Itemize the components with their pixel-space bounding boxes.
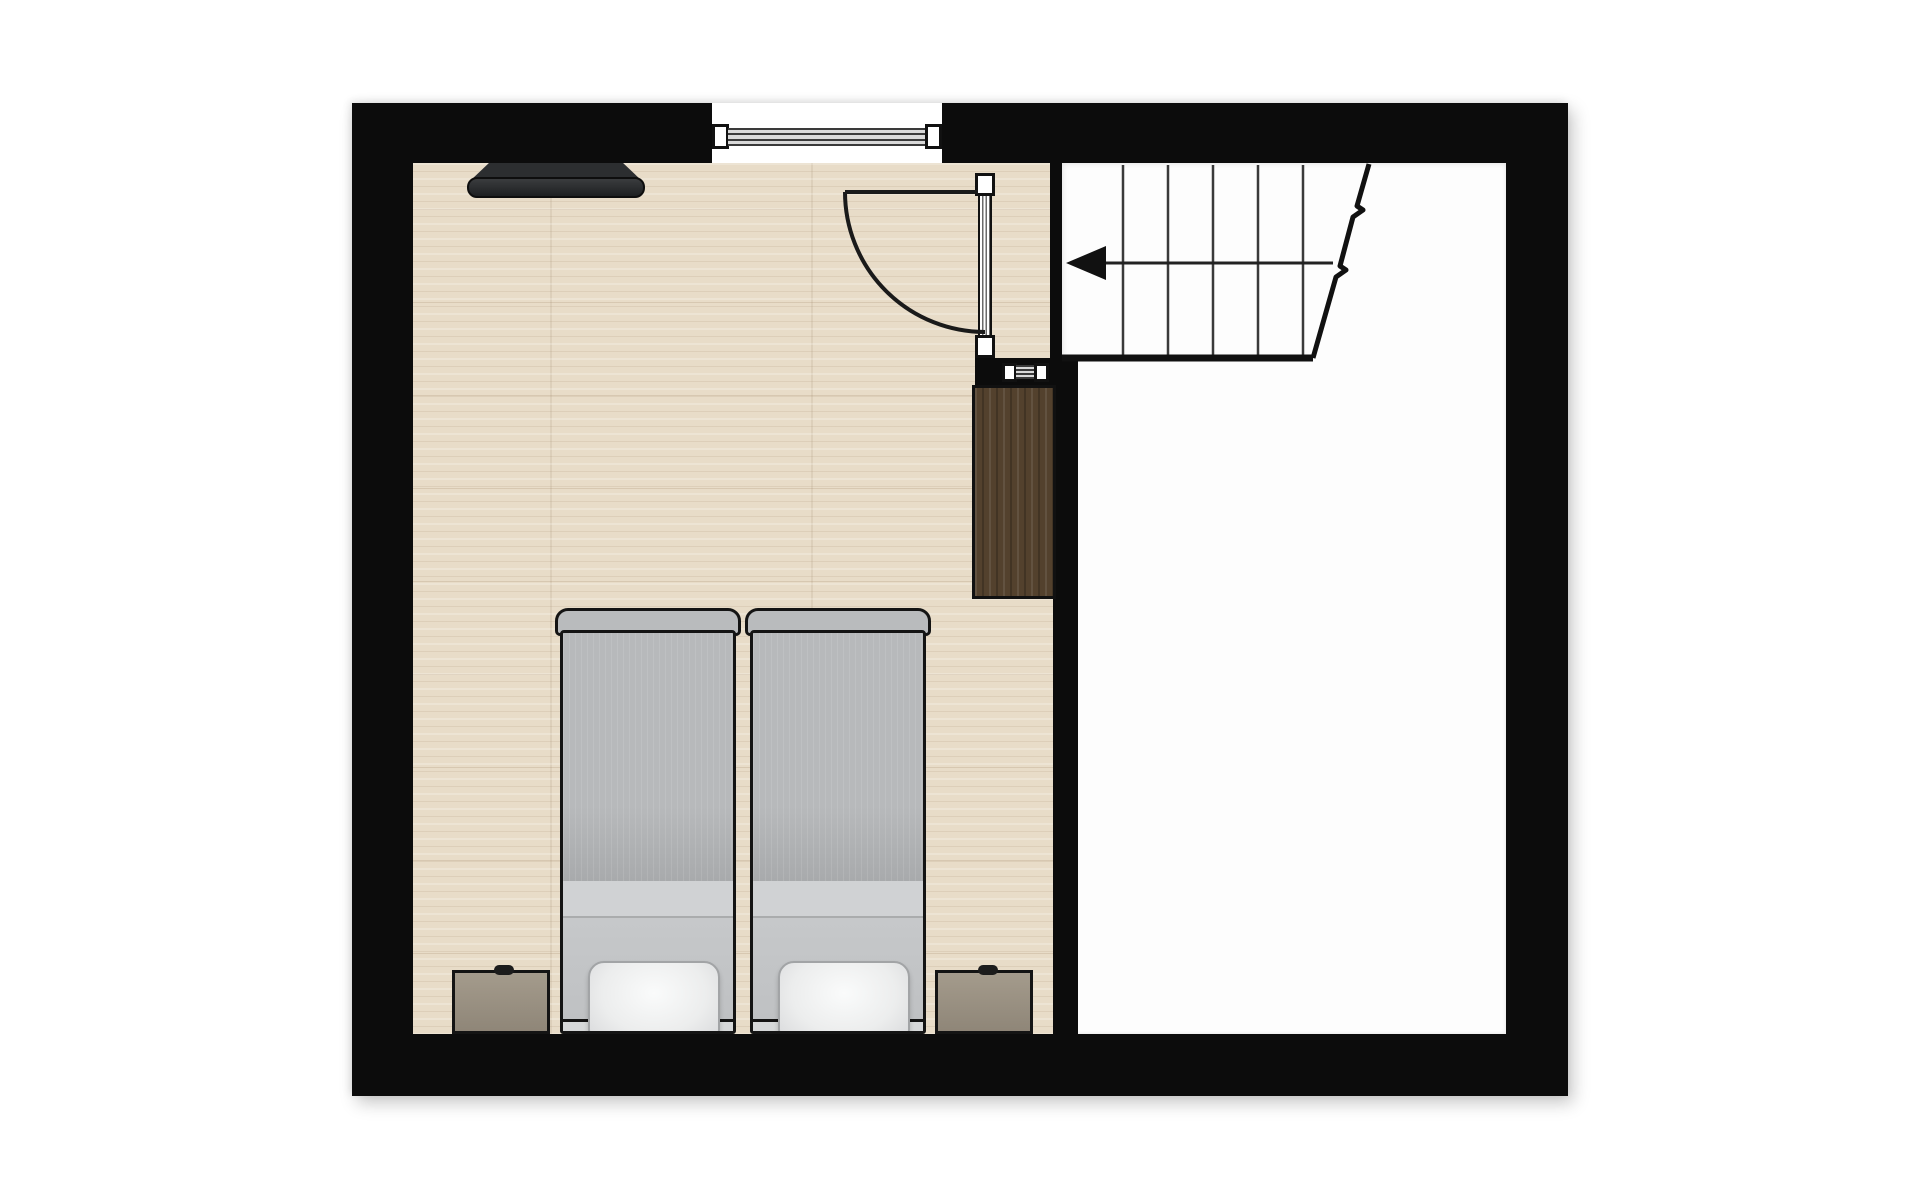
- bed-pillow-icon: [588, 961, 720, 1034]
- stair-left-wall: [1050, 163, 1062, 369]
- window-glazing-icon: [728, 128, 926, 146]
- stair-hall-room: [1062, 163, 1506, 1034]
- bed-fold-band: [563, 881, 733, 918]
- bed-fold-band: [753, 881, 923, 918]
- partition-wall: [1053, 356, 1078, 1034]
- mini-window-post-right-icon: [1034, 363, 1049, 382]
- window: [712, 103, 942, 163]
- nightstand-knob-icon: [978, 965, 998, 975]
- window-post-right-icon: [925, 124, 942, 149]
- bed-duvet: [563, 633, 733, 881]
- door-latch-post: [975, 335, 995, 358]
- wardrobe: [972, 385, 1056, 599]
- bed-body: [750, 630, 926, 1034]
- nightstand-knob-icon: [494, 965, 514, 975]
- tv-icon: [467, 177, 645, 198]
- mini-window-post-left-icon: [1002, 363, 1017, 382]
- mini-window-glazing-icon: [1016, 365, 1035, 379]
- door-hinge-post: [975, 173, 995, 196]
- bed-body: [560, 630, 736, 1034]
- nightstand-right: [935, 970, 1033, 1034]
- page-background: [0, 0, 1920, 1200]
- twin-bed-right: [745, 608, 931, 1034]
- twin-bed-left: [555, 608, 741, 1034]
- door-panel: [978, 194, 992, 337]
- bed-pillow-icon: [778, 961, 910, 1034]
- window-post-left-icon: [712, 124, 729, 149]
- nightstand-left: [452, 970, 550, 1034]
- bed-duvet: [753, 633, 923, 881]
- floor-plan: [352, 103, 1568, 1096]
